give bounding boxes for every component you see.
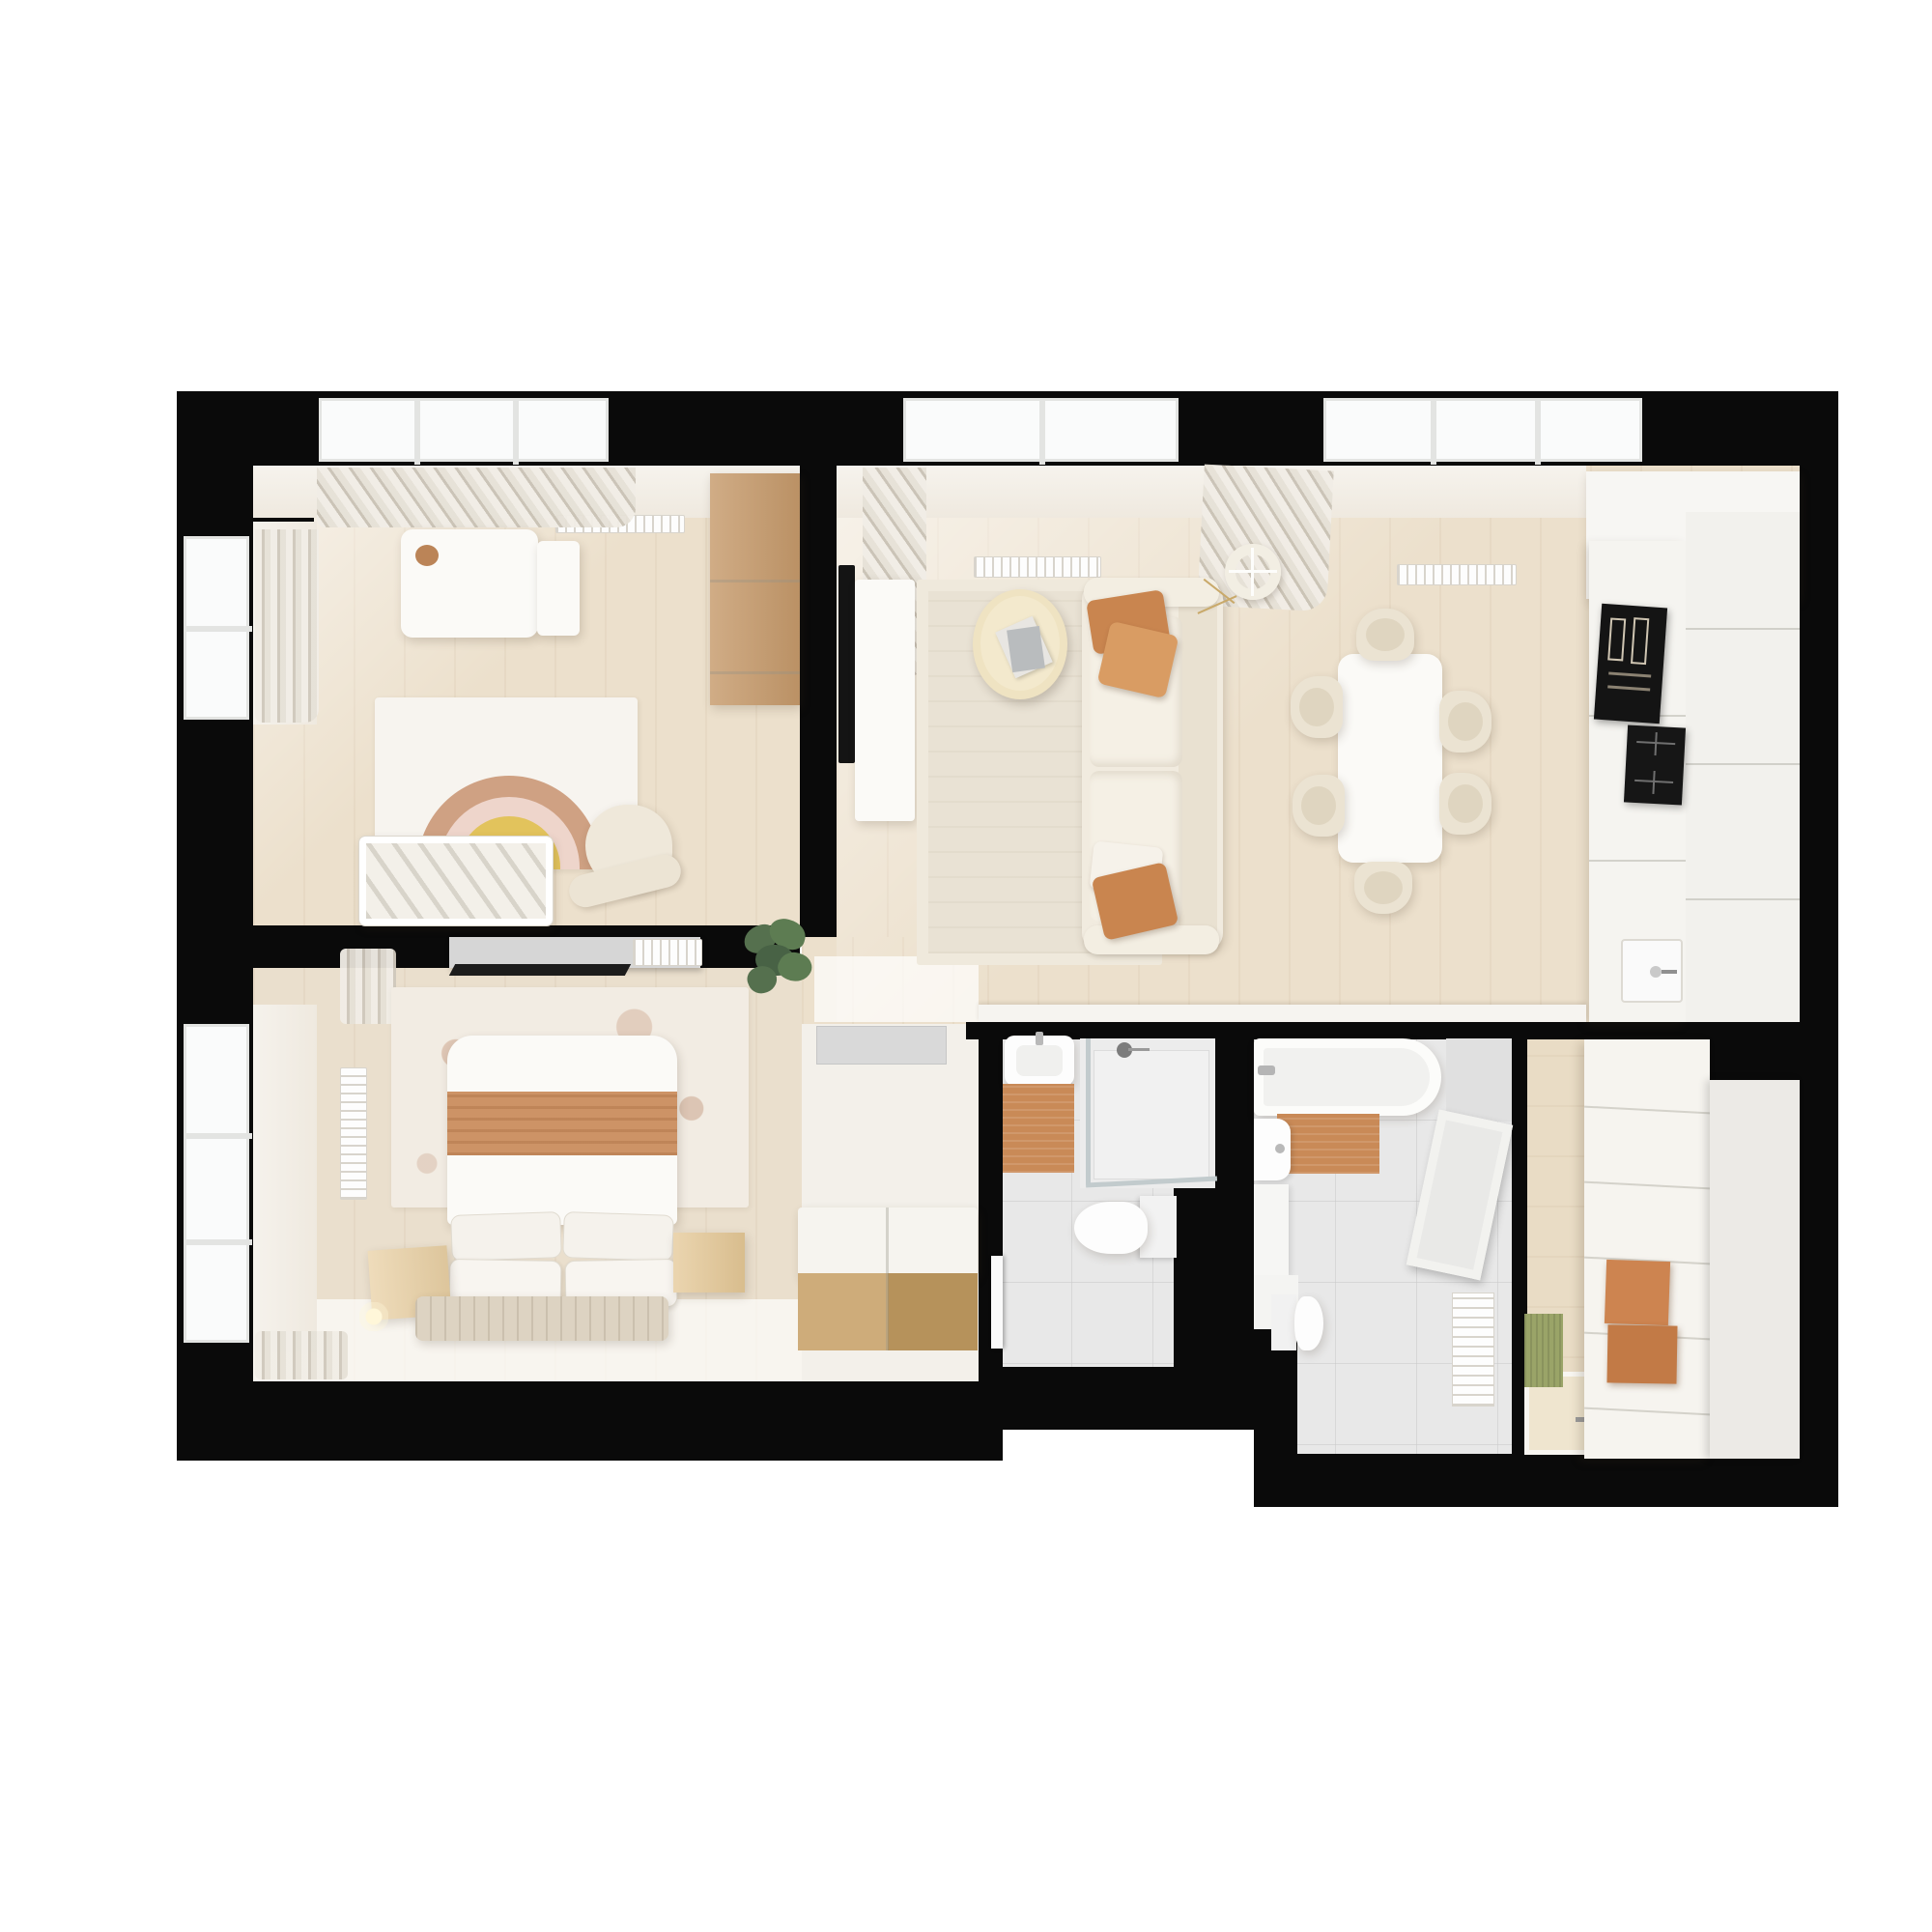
built-in-oven: [1594, 604, 1667, 724]
wall-between-bathrooms: [1215, 1038, 1254, 1430]
kitchen-tall-cabinets: [1686, 512, 1800, 1022]
tub-bath-sink: [1254, 1119, 1291, 1180]
potted-plant: [736, 920, 813, 1003]
living-low-ledge: [979, 1005, 1586, 1022]
storage-box-bottom: [1606, 1324, 1677, 1383]
bathroom-tub-ledge: [1446, 1038, 1512, 1122]
radiator-living-right: [1397, 564, 1517, 585]
bed: [447, 1036, 677, 1308]
wall-bottom-right: [1254, 1454, 1838, 1507]
magazine-2: [1007, 626, 1045, 672]
bedside-lamp: [359, 1302, 388, 1331]
bed-pillow-1: [450, 1211, 562, 1262]
tub-toilet-cistern: [1271, 1294, 1296, 1350]
wall-bottom-bedroom: [177, 1381, 1003, 1461]
radiator-bedroom-wall: [340, 1067, 367, 1200]
window-living-left: [903, 398, 1179, 462]
foot-bench: [415, 1296, 668, 1341]
bedroom-tv: [449, 964, 631, 976]
curtain-bedroom-top: [340, 949, 396, 1024]
window-living-right: [1323, 398, 1642, 462]
changing-table-toy: [415, 545, 439, 566]
dining-chair-left-1: [1291, 676, 1343, 738]
dining-chair-right-1: [1439, 691, 1492, 753]
bathtub: [1254, 1038, 1441, 1116]
toilet-bowl: [1074, 1202, 1148, 1254]
hall-closet: [1584, 1039, 1710, 1459]
wall-bottom-bathroom-shower: [979, 1367, 1254, 1430]
radiator-living-left: [974, 556, 1101, 578]
shower-glass-side: [1086, 1038, 1091, 1183]
bed-pillow-2: [562, 1211, 674, 1262]
living-floor-bright-corner: [814, 956, 979, 1022]
crib: [359, 837, 553, 925]
nursery-wardrobe: [710, 473, 800, 705]
kitchen-faucet: [1650, 966, 1662, 978]
changing-table: [401, 529, 538, 638]
wall-living-bottom: [966, 1022, 1800, 1039]
bathroom-tub-mat: [1277, 1114, 1379, 1174]
window-nursery-left: [184, 536, 249, 720]
floor-plan-render: [0, 0, 1932, 1932]
storage-box-top: [1605, 1260, 1670, 1325]
corridor-bench-wood-front: [798, 1273, 978, 1350]
dining-chair-left-2: [1293, 775, 1345, 837]
tub-toilet-bowl: [1294, 1296, 1323, 1350]
curtain-bedroom-bottom: [255, 1331, 348, 1379]
bathroom-shower-mat: [1003, 1084, 1074, 1173]
window-bedroom-left: [184, 1024, 249, 1343]
ring-lamp-cross-v: [1251, 548, 1254, 596]
kitchen-sink: [1621, 939, 1683, 1003]
dining-chair-top: [1356, 609, 1414, 661]
crib-mattress: [366, 843, 546, 919]
bathroom-tub-radiator: [1452, 1293, 1494, 1406]
bathtub-faucet: [1258, 1065, 1275, 1075]
sill-bedroom-left: [253, 1005, 317, 1352]
bed-terracotta-runner: [447, 1092, 677, 1155]
induction-cooktop: [1624, 724, 1686, 805]
dining-chair-bottom: [1354, 862, 1412, 914]
bathroom-shower-faucet: [1036, 1032, 1043, 1045]
shower-tray: [1094, 1050, 1209, 1179]
hall-wardrobe-column: [1710, 1080, 1800, 1459]
wall-nursery-living: [800, 466, 837, 937]
coffee-table: [973, 589, 1067, 699]
bathroom-shower-sink: [1005, 1036, 1074, 1086]
nightstand-right: [673, 1233, 745, 1293]
walk-in-shower: [1080, 1038, 1215, 1188]
corridor-bench-cushions: [798, 1207, 978, 1277]
corridor-doormat: [816, 1026, 947, 1065]
tv-console: [855, 580, 915, 821]
bathroom-shower-door: [991, 1256, 1003, 1349]
wall-hall-notch: [1710, 1037, 1800, 1080]
sofa-back: [1179, 589, 1217, 943]
curtain-nursery-top: [317, 468, 636, 527]
media-shelf-grille: [633, 939, 702, 966]
changing-table-side-unit: [537, 541, 580, 636]
dining-chair-right-2: [1439, 773, 1492, 835]
tub-bath-faucet: [1275, 1144, 1285, 1153]
tub-bath-vanity: [1254, 1184, 1289, 1275]
curtain-nursery-left: [255, 529, 319, 723]
wall-bathroom-shower-notch: [1174, 1188, 1215, 1367]
ring-floor-lamp: [1225, 544, 1281, 600]
bathtub-basin: [1264, 1048, 1430, 1106]
window-nursery-top: [319, 398, 609, 462]
tv: [838, 565, 855, 763]
hall-green-doormat: [1524, 1314, 1563, 1387]
wall-right: [1800, 391, 1838, 1507]
dining-table: [1338, 654, 1442, 863]
sofa: [1082, 582, 1223, 951]
corridor-bench: [798, 1207, 978, 1350]
tub-bath-toilet: [1271, 1293, 1323, 1352]
wall-hung-toilet: [1074, 1198, 1177, 1258]
rocking-chair: [568, 805, 686, 924]
